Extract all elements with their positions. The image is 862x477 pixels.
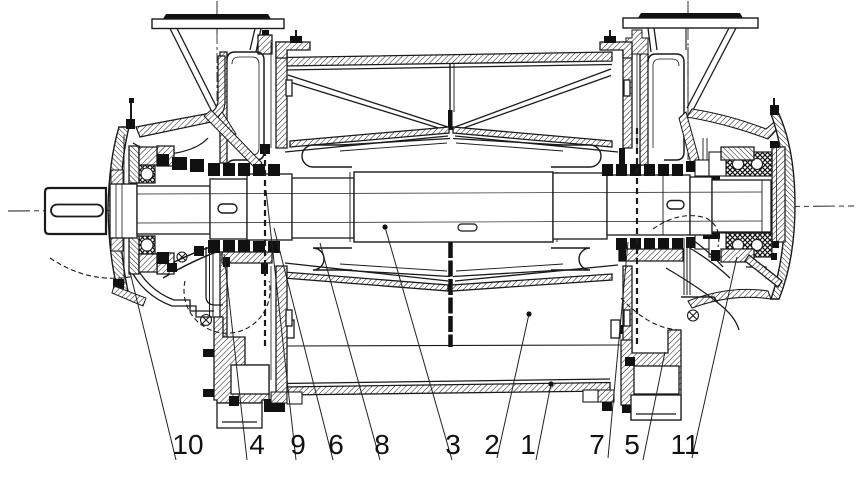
svg-text:11: 11 [670, 429, 699, 460]
svg-text:5: 5 [624, 429, 640, 460]
svg-text:1: 1 [520, 429, 536, 460]
svg-text:9: 9 [290, 429, 306, 460]
svg-text:7: 7 [589, 429, 605, 460]
svg-text:3: 3 [445, 429, 461, 460]
svg-text:6: 6 [328, 429, 344, 460]
svg-text:10: 10 [172, 429, 203, 460]
svg-text:8: 8 [374, 429, 390, 460]
svg-text:2: 2 [484, 429, 500, 460]
svg-text:4: 4 [249, 429, 265, 460]
